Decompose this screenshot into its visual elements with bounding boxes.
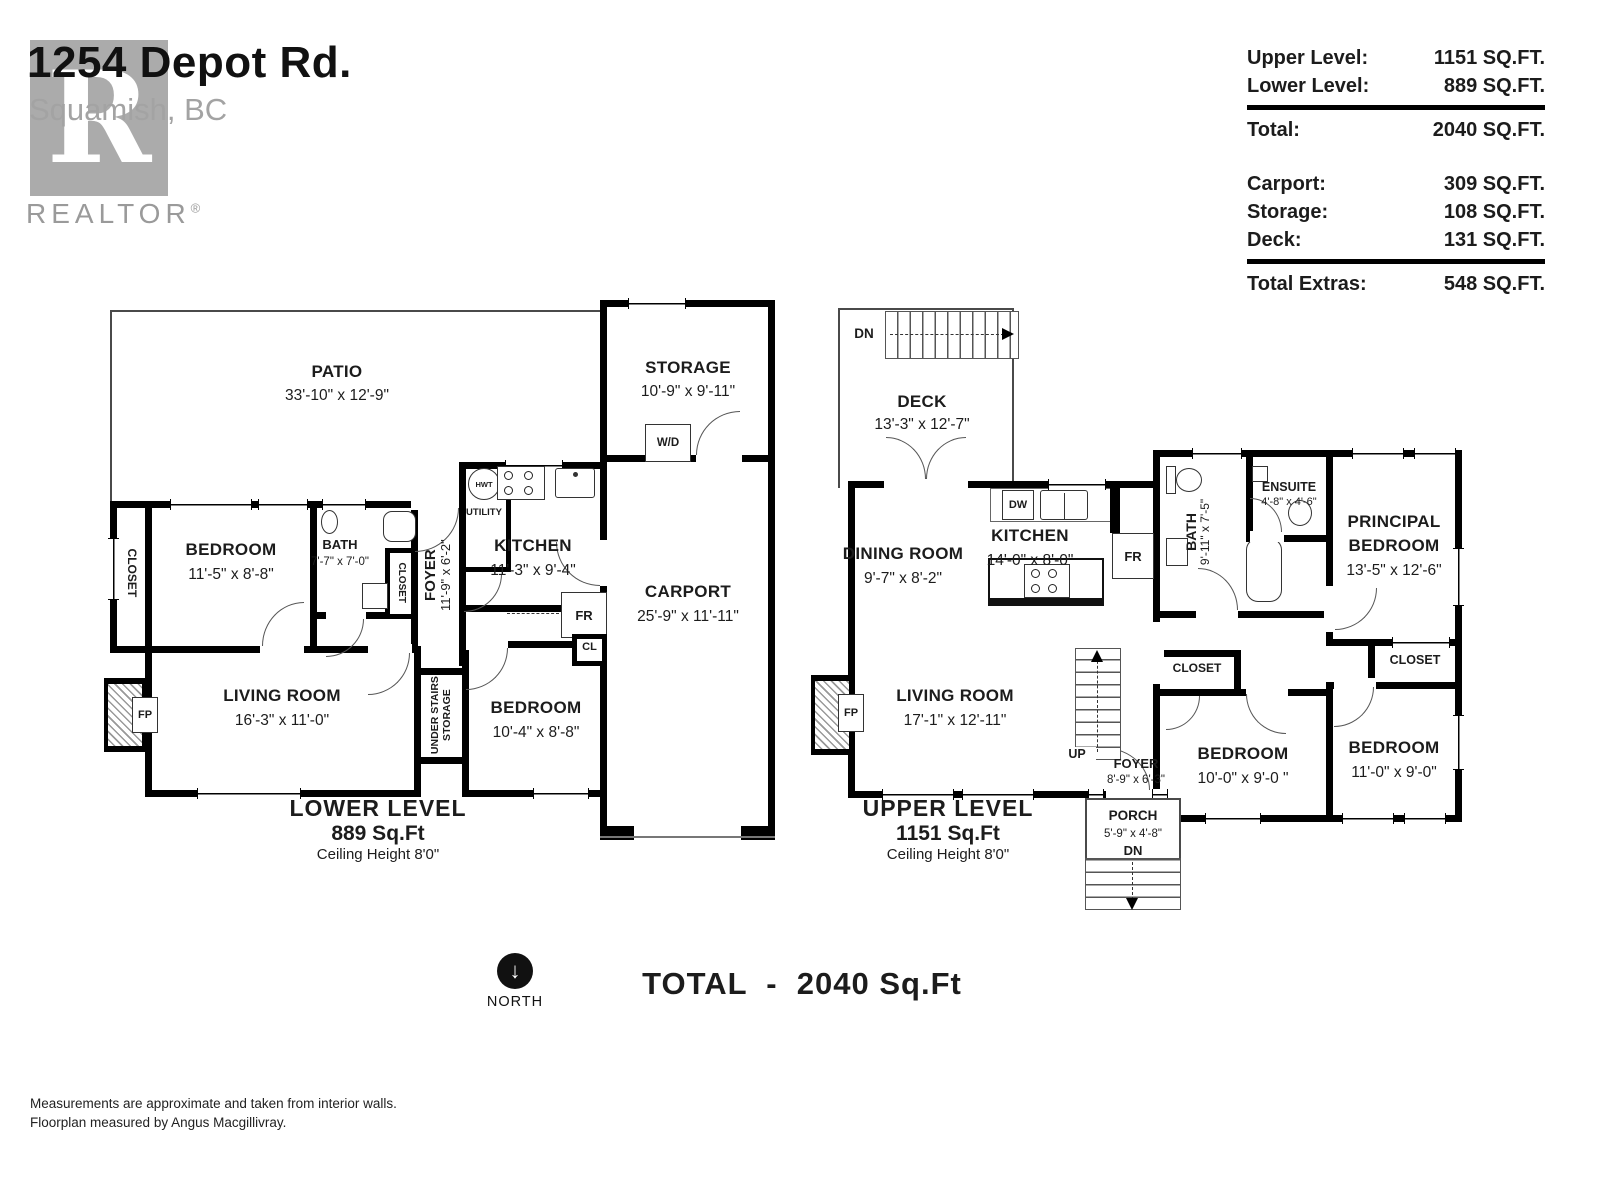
label-bath-lower: BATH — [305, 538, 375, 553]
stair-direction-line — [890, 334, 1004, 335]
stair-arrow-icon — [1126, 898, 1138, 910]
wd-label: W/D — [646, 425, 690, 461]
address-line-2: Squamish, BC — [29, 92, 227, 128]
disclaimer-line-1: Measurements are approximate and taken f… — [30, 1096, 397, 1111]
label-bedroom-2: BEDROOM — [446, 698, 626, 718]
floorplan-page: R 1254 Depot Rd. Squamish, BC REALTOR® U… — [0, 0, 1600, 1200]
divider — [1247, 259, 1545, 264]
summary-label: Storage: — [1247, 201, 1328, 224]
sink-divider — [1064, 493, 1065, 519]
tub-fixture — [383, 511, 416, 542]
summary-label: Total: — [1247, 119, 1300, 142]
label-closet-1: CLOSET — [1155, 662, 1239, 676]
label-bedroom-1-dims: 11'-5" x 8'-8" — [141, 566, 321, 584]
disclaimer-line-2: Floorplan measured by Angus Macgillivray… — [30, 1115, 286, 1130]
fp-upper-label: FP — [839, 695, 863, 731]
label-utility: UTILITY — [458, 508, 510, 519]
label-ensuite: ENSUITE — [1246, 480, 1332, 494]
label-kitchen-lower-dims: 11'-3" x 9'-4" — [453, 562, 613, 580]
address-line-1: 1254 Depot Rd. — [27, 38, 352, 88]
label-principal-2: BEDROOM — [1304, 536, 1484, 556]
realtor-wordmark: REALTOR® — [26, 198, 205, 230]
window — [1392, 637, 1450, 648]
summary-value: 108 SQ.FT. — [1444, 201, 1545, 224]
window — [1192, 448, 1242, 459]
summary-row-extras: Total Extras:548 SQ.FT. — [1247, 270, 1545, 298]
label-porch-dims: 5'-9" x 4'-8" — [1085, 828, 1181, 841]
label-bath-upper: BATH 9'-11" x 7'-5" — [1183, 472, 1213, 592]
washer-dryer-fixture: W/D — [645, 424, 691, 462]
stair-direction-line — [1097, 656, 1098, 752]
label-kitchen-lower: KITCHEN — [453, 536, 613, 556]
label-bedroom-2-dims: 10'-4" x 8'-8" — [446, 724, 626, 742]
counter-dash-line — [507, 613, 559, 614]
tub-fixture — [1246, 538, 1282, 602]
upper-level-title: UPPER LEVEL — [818, 795, 1078, 821]
foyer-name: FOYER — [422, 515, 439, 635]
burner-icon — [504, 471, 513, 480]
summary-label: Total Extras: — [1247, 273, 1367, 296]
label-closet-left: CLOSET — [124, 528, 138, 618]
window — [1342, 813, 1394, 824]
label-kitchen-upper: KITCHEN — [940, 526, 1120, 546]
porch-dn-label: DN — [1085, 844, 1181, 859]
spacer — [1247, 144, 1545, 170]
cl-label: CL — [572, 641, 607, 654]
summary-value: 131 SQ.FT. — [1444, 229, 1545, 252]
registered-mark: ® — [191, 201, 206, 216]
summary-row-carport: Carport:309 SQ.FT. — [1247, 170, 1545, 198]
label-deck: DECK — [842, 392, 1002, 412]
label-principal-1: PRINCIPAL — [1304, 512, 1484, 532]
label-carport-dims: 25'-9" x 11'-11" — [593, 608, 783, 626]
label-living-lower: LIVING ROOM — [192, 686, 372, 706]
burner-icon — [1048, 569, 1057, 578]
up-label: UP — [1058, 747, 1096, 761]
deck-stairs — [885, 311, 1019, 359]
label-living-upper-dims: 17'-1" x 12'-11" — [865, 712, 1045, 730]
summary-row-storage: Storage:108 SQ.FT. — [1247, 198, 1545, 226]
label-bedroom-upper-2-dims: 11'-0" x 9'-0" — [1304, 764, 1484, 782]
hot-water-tank-fixture: HWT — [468, 468, 500, 500]
burner-icon — [524, 471, 533, 480]
lower-level-sqft: 889 Sq.Ft — [248, 822, 508, 846]
fireplace-fixture: FP — [838, 694, 864, 732]
label-bedroom-1: BEDROOM — [141, 540, 321, 560]
summary-value: 889 SQ.FT. — [1444, 75, 1545, 98]
window — [1048, 479, 1106, 490]
door-gap — [1250, 531, 1284, 542]
label-carport: CARPORT — [598, 582, 778, 602]
door-gap — [1324, 586, 1335, 632]
label-closet-small: CLOSET — [395, 551, 407, 615]
summary-label: Deck: — [1247, 229, 1301, 252]
summary-row-lower: Lower Level:889 SQ.FT. — [1247, 72, 1545, 100]
window — [1414, 448, 1456, 459]
stair-direction-line — [1132, 862, 1133, 900]
window — [1352, 448, 1404, 459]
window — [170, 499, 252, 510]
summary-label: Lower Level: — [1247, 75, 1369, 98]
sink-fixture — [1040, 490, 1088, 520]
label-bedroom-upper-2: BEDROOM — [1304, 738, 1484, 758]
sink-fixture — [362, 583, 388, 609]
north-label: NORTH — [481, 994, 549, 1010]
realtor-text: REALTOR — [26, 198, 191, 229]
understairs-line1: UNDER STAIRS — [429, 665, 441, 765]
summary-value: 1151 SQ.FT. — [1434, 47, 1545, 70]
label-ensuite-dims: 4'-8" x 4'-6" — [1242, 496, 1336, 509]
label-storage: STORAGE — [608, 358, 768, 378]
stair-arrow-icon — [1091, 650, 1103, 662]
deck-dn-label: DN — [846, 326, 882, 342]
summary-value: 548 SQ.FT. — [1444, 273, 1545, 296]
stove-fixture — [497, 466, 545, 500]
burner-icon — [504, 486, 513, 495]
label-foyer-lower: FOYER 11'-9" x 6'-2" — [422, 515, 454, 635]
fp-label: FP — [133, 698, 157, 732]
label-closet-2: CLOSET — [1373, 653, 1457, 667]
label-dining-dims: 9'-7" x 8'-2" — [813, 570, 993, 588]
window — [322, 499, 366, 510]
label-principal-dims: 13'-5" x 12'-6" — [1304, 562, 1484, 580]
lower-level-title: LOWER LEVEL — [248, 795, 508, 821]
carport-opening-line — [600, 836, 775, 838]
label-storage-dims: 10'-9" x 9'-11" — [598, 383, 778, 401]
summary-label: Carport: — [1247, 173, 1326, 196]
window — [108, 538, 119, 600]
upper-level-ceiling: Ceiling Height 8'0" — [818, 846, 1078, 863]
label-living-upper: LIVING ROOM — [865, 686, 1045, 706]
burner-icon — [1031, 584, 1040, 593]
window — [1404, 813, 1446, 824]
sink-fixture — [555, 468, 595, 498]
fireplace-fixture: FP — [132, 697, 158, 733]
stairs-up — [1075, 648, 1121, 760]
faucet-icon — [573, 472, 578, 477]
summary-label: Upper Level: — [1247, 47, 1368, 70]
window — [258, 499, 308, 510]
north-compass-icon: ↓ — [497, 953, 533, 989]
summary-value: 309 SQ.FT. — [1444, 173, 1545, 196]
label-porch: PORCH — [1085, 808, 1181, 824]
burner-icon — [1048, 584, 1057, 593]
label-patio: PATIO — [257, 362, 417, 382]
bath-upper-name: BATH — [1183, 472, 1199, 592]
label-kitchen-upper-dims: 14'-0" x 8'-0" — [940, 552, 1120, 570]
burner-icon — [524, 486, 533, 495]
window — [1205, 813, 1261, 824]
lower-level-ceiling: Ceiling Height 8'0" — [248, 846, 508, 863]
area-summary-table: Upper Level:1151 SQ.FT. Lower Level:889 … — [1247, 44, 1545, 298]
summary-row-total: Total:2040 SQ.FT. — [1247, 116, 1545, 144]
stair-arrow-icon — [1002, 328, 1014, 340]
label-deck-dims: 13'-3" x 12'-7" — [832, 416, 1012, 434]
summary-row-upper: Upper Level:1151 SQ.FT. — [1247, 44, 1545, 72]
dishwasher-fixture: DW — [1002, 490, 1034, 520]
window — [628, 298, 686, 309]
summary-value: 2040 SQ.FT. — [1433, 119, 1545, 142]
burner-icon — [1031, 569, 1040, 578]
bath-upper-dims: 9'-11" x 7'-5" — [1199, 472, 1213, 592]
label-patio-dims: 33'-10" x 12'-9" — [247, 387, 427, 405]
foyer-dims: 11'-9" x 6'-2" — [439, 515, 454, 635]
total-area-line: TOTAL - 2040 Sq.Ft — [602, 966, 1002, 1002]
divider — [1247, 105, 1545, 110]
toilet-tank — [1166, 466, 1176, 494]
window — [533, 788, 589, 799]
summary-row-deck: Deck:131 SQ.FT. — [1247, 226, 1545, 254]
hwt-label: HWT — [469, 469, 499, 499]
room-carport — [600, 455, 775, 840]
dw-label: DW — [1003, 491, 1033, 519]
label-living-lower-dims: 16'-3" x 11'-0" — [192, 712, 372, 730]
label-bath-lower-dims: 7'-7" x 7'-0" — [298, 556, 382, 569]
toilet-fixture — [321, 510, 338, 534]
upper-level-sqft: 1151 Sq.Ft — [818, 822, 1078, 846]
